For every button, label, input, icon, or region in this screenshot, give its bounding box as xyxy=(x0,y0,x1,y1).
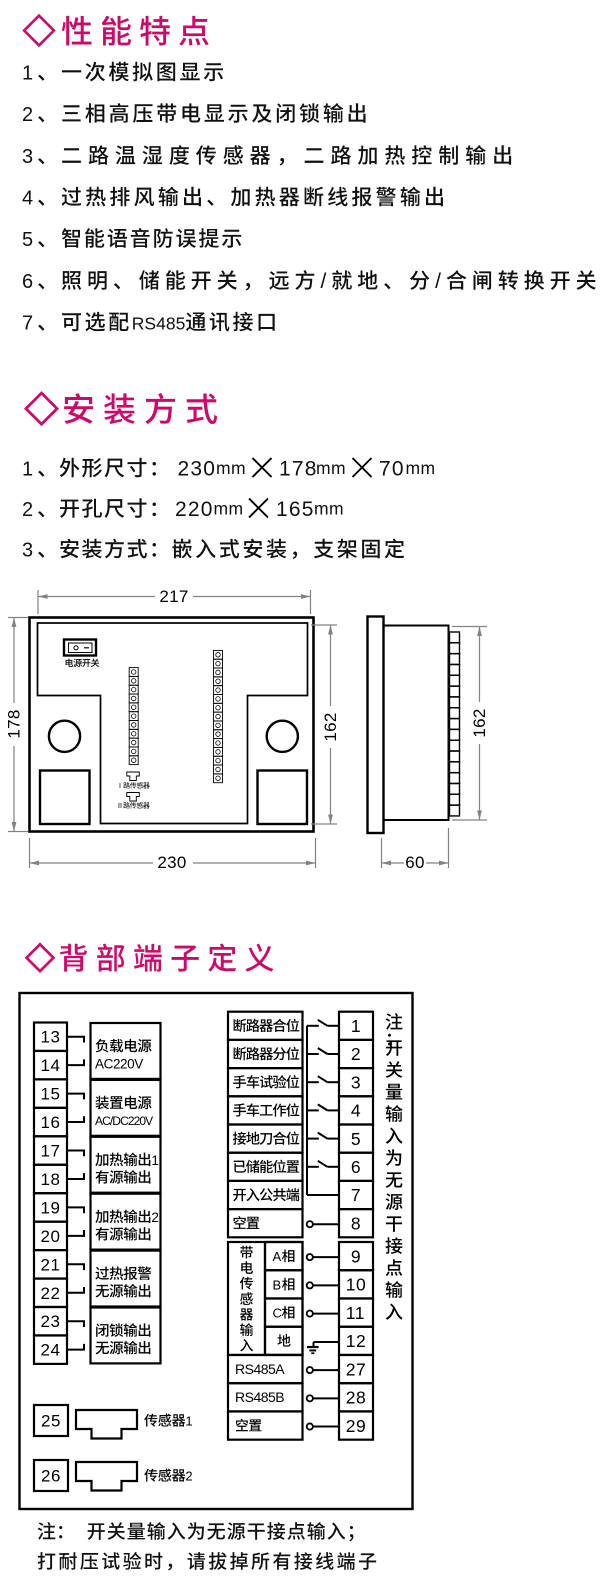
svg-text:23: 23 xyxy=(41,1312,61,1331)
svg-text:18: 18 xyxy=(41,1170,61,1189)
svg-text:9: 9 xyxy=(351,1246,361,1266)
svg-text:1: 1 xyxy=(351,1016,361,1036)
svg-text:7: 7 xyxy=(351,1185,361,1205)
svg-text:22: 22 xyxy=(41,1284,61,1303)
svg-text:60: 60 xyxy=(405,853,425,872)
svg-text:1: 1 xyxy=(22,459,37,481)
svg-text:3: 3 xyxy=(351,1072,361,1092)
svg-text:3: 3 xyxy=(22,146,37,168)
svg-text:RS485: RS485 xyxy=(132,314,186,334)
svg-text:230: 230 xyxy=(178,458,217,481)
svg-text:1: 1 xyxy=(185,1414,192,1429)
svg-text:/: / xyxy=(435,270,446,293)
svg-text:mm: mm xyxy=(314,499,344,519)
svg-text:162: 162 xyxy=(321,712,340,741)
svg-text:6: 6 xyxy=(351,1157,361,1177)
svg-text:70: 70 xyxy=(379,458,405,481)
svg-text:29: 29 xyxy=(346,1416,366,1436)
svg-text:16: 16 xyxy=(41,1113,61,1132)
svg-text:2: 2 xyxy=(351,1044,361,1064)
svg-text:2: 2 xyxy=(22,499,37,521)
svg-text:5: 5 xyxy=(351,1129,361,1149)
svg-text:2: 2 xyxy=(151,1210,158,1225)
svg-text:4: 4 xyxy=(351,1101,361,1121)
svg-text:mm: mm xyxy=(316,458,346,478)
svg-text:C: C xyxy=(273,1306,282,1321)
svg-text:25: 25 xyxy=(41,1412,61,1431)
svg-text:2: 2 xyxy=(185,1469,192,1484)
svg-text:7: 7 xyxy=(22,313,37,335)
svg-text:20: 20 xyxy=(41,1227,61,1246)
svg-text:1: 1 xyxy=(151,1153,158,1168)
svg-text:mm: mm xyxy=(216,458,246,478)
svg-text:AC220V: AC220V xyxy=(95,1057,143,1072)
svg-text:26: 26 xyxy=(41,1467,61,1486)
svg-text:21: 21 xyxy=(41,1255,61,1274)
svg-text:14: 14 xyxy=(41,1056,61,1075)
svg-text:162: 162 xyxy=(470,708,489,737)
svg-text:mm: mm xyxy=(214,499,244,519)
svg-text:24: 24 xyxy=(41,1341,61,1360)
svg-text:B: B xyxy=(273,1277,281,1292)
svg-text:6: 6 xyxy=(22,271,37,293)
svg-text:A: A xyxy=(273,1249,282,1264)
svg-text:19: 19 xyxy=(41,1198,61,1217)
svg-text:230: 230 xyxy=(157,853,186,872)
svg-text:15: 15 xyxy=(41,1085,61,1104)
svg-text:12: 12 xyxy=(346,1331,366,1351)
svg-text:11: 11 xyxy=(346,1303,365,1323)
svg-text:8: 8 xyxy=(351,1213,361,1233)
svg-text:17: 17 xyxy=(41,1142,61,1161)
svg-text:RS485B: RS485B xyxy=(235,1389,284,1405)
svg-text:13: 13 xyxy=(41,1028,61,1047)
svg-text:mm: mm xyxy=(406,458,436,478)
svg-text:178: 178 xyxy=(279,458,318,481)
svg-text:5: 5 xyxy=(22,229,37,251)
svg-text:220: 220 xyxy=(175,498,214,521)
svg-text:217: 217 xyxy=(159,587,188,606)
svg-text:/: / xyxy=(321,270,332,293)
svg-text:3: 3 xyxy=(22,540,37,562)
svg-text:AC/DC220V: AC/DC220V xyxy=(95,1114,153,1128)
svg-text:10: 10 xyxy=(346,1275,366,1295)
svg-text:28: 28 xyxy=(346,1388,366,1408)
svg-text:27: 27 xyxy=(346,1359,366,1379)
svg-text:165: 165 xyxy=(276,498,315,521)
svg-text:2: 2 xyxy=(22,104,37,126)
svg-text:178: 178 xyxy=(5,709,24,738)
svg-text:RS485A: RS485A xyxy=(235,1361,285,1377)
svg-text:1: 1 xyxy=(22,63,37,85)
svg-text:4: 4 xyxy=(22,188,37,210)
